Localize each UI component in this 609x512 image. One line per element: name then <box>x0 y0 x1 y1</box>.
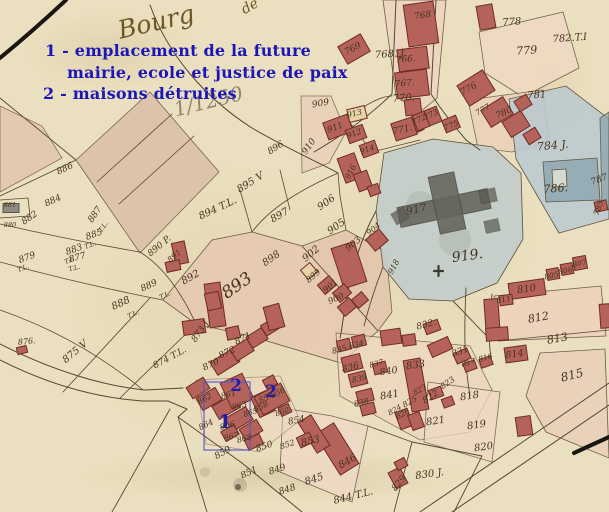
building <box>403 1 439 47</box>
num-label: 881 <box>4 201 16 209</box>
paper-stain <box>200 467 210 477</box>
legend-line-2: mairie, ecole et justice de paix <box>67 63 348 82</box>
num-label: 884 <box>43 193 63 209</box>
num-label: 888 <box>110 295 132 313</box>
ink-stain <box>233 478 247 492</box>
num-label: T.L. <box>97 220 110 234</box>
building <box>402 334 416 347</box>
num-label: 876. <box>18 336 37 347</box>
num-label: 768. J. <box>375 48 408 61</box>
num-label: 886 <box>55 161 75 177</box>
num-label: 782.T.I <box>552 32 588 45</box>
parcel-left-edge <box>0 106 62 192</box>
building <box>380 328 402 346</box>
legend-line-3: 2 - maisons détruites <box>43 84 237 103</box>
num-label: 779 <box>516 43 538 57</box>
num-label: T.L. <box>83 239 97 251</box>
num-label: 875 V <box>61 337 92 366</box>
num-label: 784 J. <box>536 138 569 154</box>
num-label: 770. <box>392 92 415 105</box>
num-label: 894 T.L. <box>197 195 238 222</box>
num-label: T.L. <box>16 262 30 274</box>
num-label: 767. <box>394 78 415 90</box>
num-label: 830 J. <box>415 467 445 482</box>
building <box>476 4 496 30</box>
hw-label: de <box>239 0 262 18</box>
num-label: 882 <box>20 209 40 227</box>
num-label: 786. <box>543 181 568 196</box>
num-label: 906 <box>316 193 338 213</box>
num-label: 896 <box>266 139 286 157</box>
num-label: T.L. <box>68 263 82 274</box>
building <box>515 416 532 437</box>
num-label: 778 <box>502 16 522 28</box>
building <box>486 327 509 342</box>
building <box>204 291 221 311</box>
legend-line-1: 1 - emplacement de la future <box>45 41 311 60</box>
num-label: 897 <box>269 206 292 225</box>
parcel-line <box>240 190 252 232</box>
churchd-building <box>479 188 497 204</box>
num-label: 889 <box>139 278 159 294</box>
num-label: 848 <box>278 483 298 498</box>
parcel-line <box>112 409 170 512</box>
num-label: 806 <box>558 265 574 277</box>
num-label: 805 <box>544 270 560 282</box>
parcel-line <box>178 417 207 512</box>
churchd-building <box>484 219 500 234</box>
hw-label: Bourg <box>114 0 197 45</box>
num-label: T.L. <box>126 308 140 320</box>
church-shading <box>439 224 471 256</box>
num-label: 895 V <box>235 169 267 195</box>
num-label: 813 <box>546 330 569 346</box>
building <box>599 304 609 329</box>
num-label: 849 <box>268 463 288 478</box>
cadastral-map-page: Bourgde1/1250221768766.767.769768. J.778… <box>0 0 609 512</box>
church-shading <box>406 191 434 219</box>
num-label: 880 <box>4 221 16 229</box>
num-label: 781 <box>527 89 547 101</box>
